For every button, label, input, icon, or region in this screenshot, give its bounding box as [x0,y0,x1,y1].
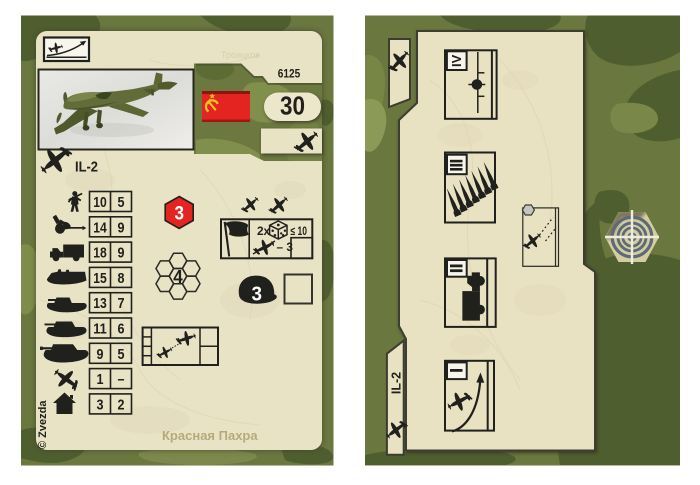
svg-text:4: 4 [173,267,183,287]
svg-text:3: 3 [252,284,263,306]
svg-text:2x: 2x [257,224,271,238]
svg-text:9: 9 [118,246,125,262]
svg-text:2: 2 [118,397,125,413]
svg-text:13: 13 [93,296,107,312]
svg-text:11: 11 [93,322,107,338]
svg-text:15: 15 [93,271,107,287]
svg-text:10: 10 [93,195,107,211]
svg-text:© Zvezda: © Zvezda [37,400,49,449]
svg-text:6125: 6125 [278,69,301,81]
svg-text:3: 3 [97,397,104,413]
svg-text:7: 7 [118,296,125,312]
svg-text:IL-2: IL-2 [75,160,98,176]
svg-text:3: 3 [174,204,184,225]
svg-text:14: 14 [93,220,107,236]
svg-text:Троицков: Троицков [221,50,260,60]
svg-text:18: 18 [93,246,107,262]
svg-text:Красная Пахра: Красная Пахра [162,428,258,443]
svg-text:IV: IV [449,54,464,67]
svg-text:6: 6 [118,322,125,338]
svg-text:8: 8 [118,271,125,287]
svg-text:5: 5 [118,195,125,211]
svg-text:9: 9 [118,220,125,236]
svg-text:9: 9 [97,347,104,363]
svg-text:5: 5 [118,347,125,363]
svg-text:IL-2: IL-2 [389,372,403,394]
svg-text:1: 1 [97,372,104,388]
svg-text:≤ 10: ≤ 10 [291,224,308,238]
svg-text:– 3: – 3 [277,240,294,254]
svg-text:–: – [118,372,125,388]
svg-text:30: 30 [280,91,305,121]
